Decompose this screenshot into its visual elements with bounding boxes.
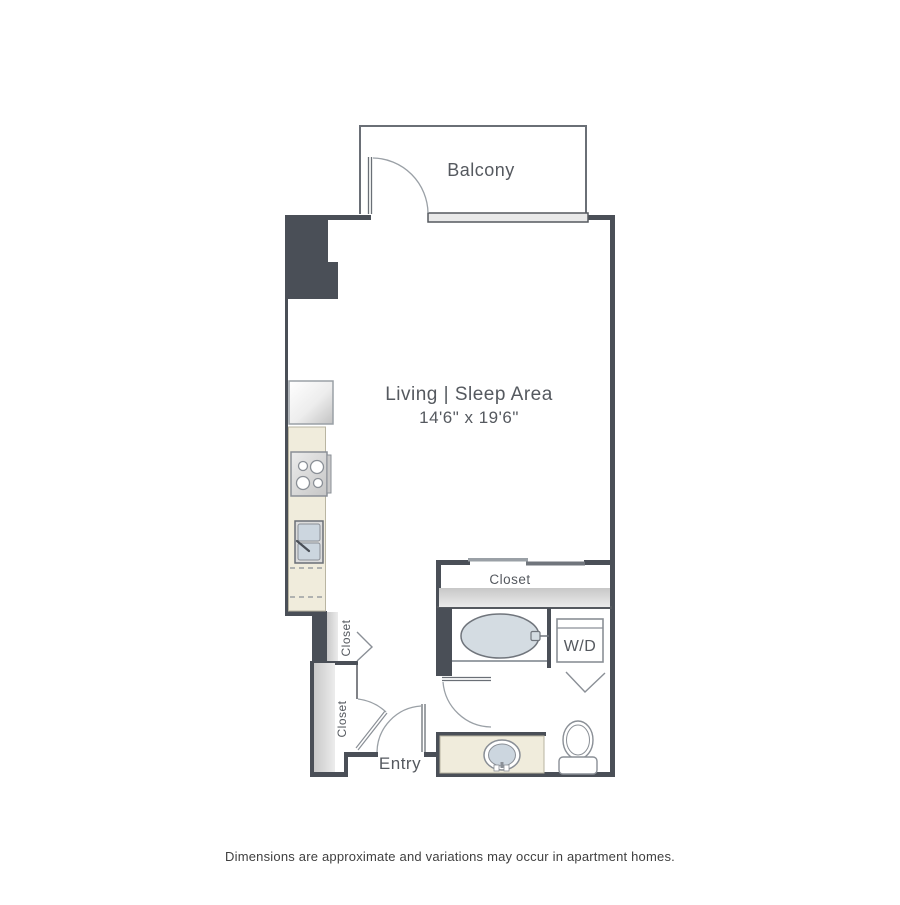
bath-closet: Closet <box>439 558 610 607</box>
floor-plan-page: Balcony Living | Sleep Area 14 <box>0 0 900 900</box>
kitchen-sink-icon <box>295 521 323 563</box>
wall-closet-left <box>310 661 314 777</box>
wall-right <box>610 215 615 777</box>
wall-small-closet-block <box>312 611 327 663</box>
bath-closet-shelf <box>439 588 610 607</box>
wall-vanity-top <box>436 732 546 736</box>
wall-bath-top-right <box>584 560 612 565</box>
washer-dryer-bifold-door <box>566 672 605 692</box>
entry-label: Entry <box>379 754 421 773</box>
living-sleep-area: Living | Sleep Area 14'6" x 19'6" <box>385 384 553 427</box>
wall-left <box>285 217 288 614</box>
balcony: Balcony <box>360 126 586 214</box>
floor-plan-diagram: Balcony Living | Sleep Area 14 <box>0 0 900 900</box>
small-closet-bifold-door <box>357 632 372 661</box>
large-closet-door <box>356 699 387 750</box>
bathroom-door-swing-arc <box>443 682 491 727</box>
entry: Entry <box>377 704 425 773</box>
bathroom-sink-icon <box>484 740 520 771</box>
wall-vanity-left <box>436 732 440 777</box>
wall-entry-left <box>344 752 378 757</box>
bath-closet-label: Closet <box>489 572 530 587</box>
window <box>428 213 588 222</box>
wall-tub-wd-divider <box>547 608 551 668</box>
wall-bath-top-left <box>436 560 470 565</box>
living-area-dimensions: 14'6" x 19'6" <box>419 408 519 427</box>
wall-closet-bottom <box>310 772 348 777</box>
balcony-label: Balcony <box>447 160 515 180</box>
bathroom: W/D <box>440 614 605 774</box>
large-closet-label: Closet <box>335 700 349 737</box>
balcony-door <box>369 157 429 214</box>
sliding-door-panel-1 <box>468 558 528 562</box>
toilet-icon <box>559 721 597 774</box>
refrigerator-icon <box>289 381 333 424</box>
wall-tub-left-block <box>436 608 452 676</box>
wall-entry-right <box>424 752 438 757</box>
structural-column <box>288 217 338 299</box>
disclaimer-text: Dimensions are approximate and variation… <box>225 849 675 864</box>
balcony-door-swing-arc <box>373 158 428 213</box>
washer-dryer: W/D <box>557 619 605 692</box>
bathtub-icon <box>452 614 549 661</box>
vanity <box>440 736 544 773</box>
kitchen <box>289 381 334 611</box>
large-closet-shelf <box>314 663 335 772</box>
washer-dryer-label: W/D <box>564 638 597 655</box>
sliding-door-panel-2 <box>526 562 585 566</box>
bathroom-door <box>442 678 491 728</box>
living-area-label: Living | Sleep Area <box>385 384 553 405</box>
small-closet-label: Closet <box>339 619 353 656</box>
small-closet-shelf <box>327 612 338 661</box>
hall-closet-small: Closet <box>327 612 372 661</box>
stove-icon <box>291 452 331 496</box>
